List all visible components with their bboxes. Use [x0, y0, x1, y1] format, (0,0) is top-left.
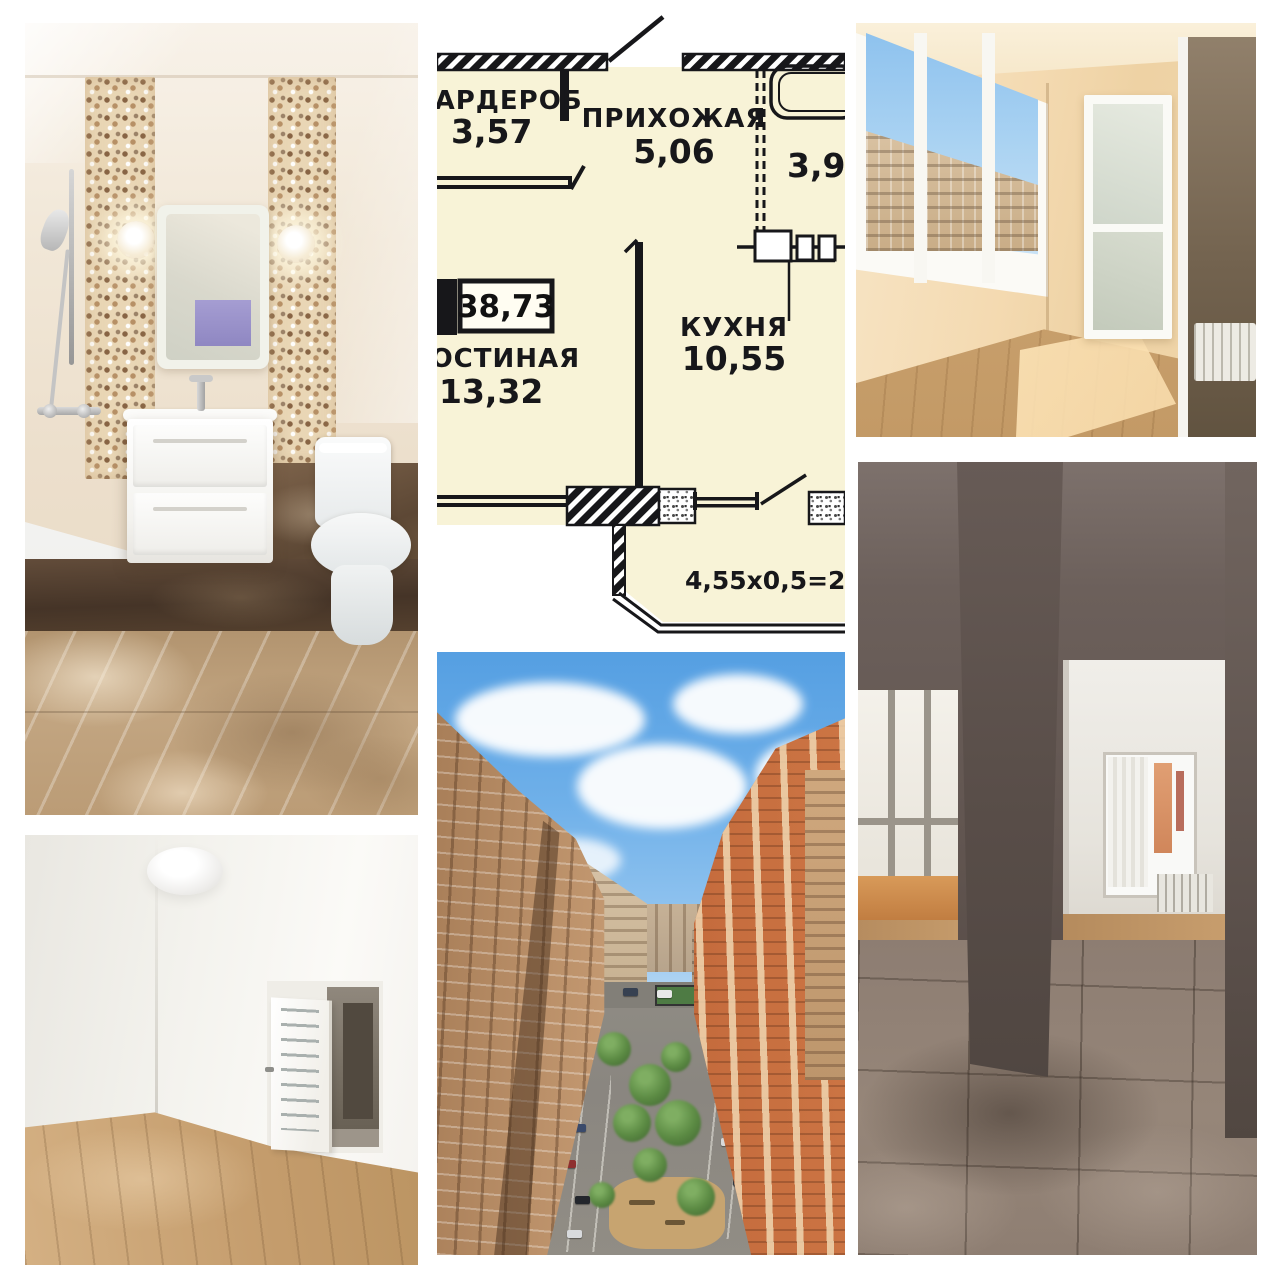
wall-living-kitchen [635, 242, 643, 492]
radiator [1194, 323, 1256, 381]
fixture-icon [797, 236, 813, 260]
vanity-drawer [133, 425, 267, 487]
car [567, 1230, 582, 1238]
courtyard-aerial-photo [437, 652, 845, 1255]
hallway-area: 5,06 [633, 132, 714, 171]
interior-window-glass [1093, 232, 1163, 330]
car [623, 988, 638, 996]
hallway-floor [327, 1129, 379, 1147]
wall-wardrobe-bottom [437, 176, 571, 180]
area-badge-block [437, 279, 457, 335]
cloud [577, 744, 747, 829]
sink-faucet [197, 379, 205, 411]
tree [655, 1100, 701, 1146]
empty-room-photo [25, 835, 418, 1265]
far-right-building [805, 770, 845, 1080]
hallway-dark-doorway [343, 1003, 373, 1119]
curtain [1108, 757, 1148, 887]
fixture-icon [819, 236, 835, 260]
kitchen-area: 10,55 [682, 339, 786, 378]
interior-window-glass [1093, 104, 1163, 224]
left-window-opening [858, 690, 958, 922]
toilet-tank-lid [319, 443, 387, 453]
right-wall [1225, 462, 1257, 1138]
marble-floor [25, 631, 418, 815]
bathroom-area: 3,95 [787, 146, 845, 185]
living-room-label: ГОСТИНАЯ [437, 344, 580, 374]
bathroom-photo [25, 23, 418, 815]
tree [661, 1042, 691, 1072]
drawer-handle [153, 439, 247, 443]
cloud [455, 682, 645, 757]
shower-rail [69, 169, 74, 365]
wall-top-left [437, 54, 607, 70]
door-handle [265, 1067, 274, 1072]
cloud [673, 674, 803, 734]
balcony-photo [856, 23, 1256, 437]
door-glass-strips [281, 1008, 319, 1132]
tree [629, 1064, 671, 1106]
car [657, 990, 672, 998]
balcony-side-wall [613, 525, 625, 595]
vanity-cabinet [127, 419, 273, 563]
car [575, 1196, 590, 1204]
floor-plan: 38,73 ГАРДЕРОБ 3,57 ПРИХОЖАЯ 5,06 3,95 К… [437, 8, 845, 640]
window-view-warm [1154, 763, 1172, 853]
window-view-warm [858, 876, 958, 922]
interior-window [1084, 95, 1172, 339]
sink-faucet-spout [189, 375, 213, 382]
vanity-drawer [133, 493, 267, 555]
living-room-area: 13,32 [439, 372, 543, 411]
total-area-value: 38,73 [457, 289, 555, 325]
wall-bottom-hatched [567, 487, 659, 525]
window-kitchen [695, 504, 755, 508]
radiator [1157, 874, 1213, 912]
mixer-knob [43, 404, 57, 418]
wardrobe-area: 3,57 [451, 112, 532, 151]
window-mullion [982, 33, 995, 283]
tree [589, 1182, 615, 1208]
window-living [437, 495, 567, 499]
window-living [437, 503, 567, 507]
bathroom-mirror [157, 205, 269, 369]
floor-plan-drawing: 38,73 ГАРДЕРОБ 3,57 ПРИХОЖАЯ 5,06 3,95 К… [437, 8, 845, 640]
mirror-reflection [195, 300, 251, 346]
fixture-icon [755, 231, 791, 261]
window-cap [755, 492, 759, 510]
tiled-floor [858, 940, 1257, 1255]
wall-wardrobe-bottom [437, 185, 571, 189]
playground-equipment [629, 1200, 655, 1205]
hallway-label: ПРИХОЖАЯ [582, 104, 767, 134]
wall-bottom-concrete [659, 489, 695, 523]
tree [633, 1148, 667, 1182]
wall-lamp [277, 225, 315, 263]
tree [597, 1032, 631, 1066]
window-view-building [1176, 771, 1184, 831]
drawer-handle [153, 507, 247, 511]
wall-lamp [117, 221, 155, 259]
floor-tile-joint [25, 711, 418, 713]
playground-equipment [665, 1220, 685, 1225]
real-estate-photo-collage: 38,73 ГАРДЕРОБ 3,57 ПРИХОЖАЯ 5,06 3,95 К… [0, 0, 1280, 1280]
ceiling-edge [25, 75, 418, 78]
window-bar [858, 818, 958, 825]
window-kitchen [695, 497, 755, 501]
wall-bottom-concrete [809, 492, 845, 524]
ceiling-lamp [147, 847, 223, 895]
tree [613, 1104, 651, 1142]
wall-corner [1046, 83, 1049, 343]
mosaic-tile-strip [268, 77, 336, 463]
balcony-dimension-label: 4,55х0,5=2,28 [685, 566, 845, 595]
mixer-knob [77, 404, 91, 418]
wood-floor-strip [858, 920, 958, 942]
window-mullion [914, 33, 927, 283]
white-door-leaf [271, 997, 332, 1152]
room-corner-photo [858, 462, 1257, 1255]
entry-door-swing [609, 17, 663, 61]
doorway-to-bright-room [1063, 660, 1237, 920]
tree [677, 1178, 715, 1216]
toilet-base [331, 565, 393, 645]
